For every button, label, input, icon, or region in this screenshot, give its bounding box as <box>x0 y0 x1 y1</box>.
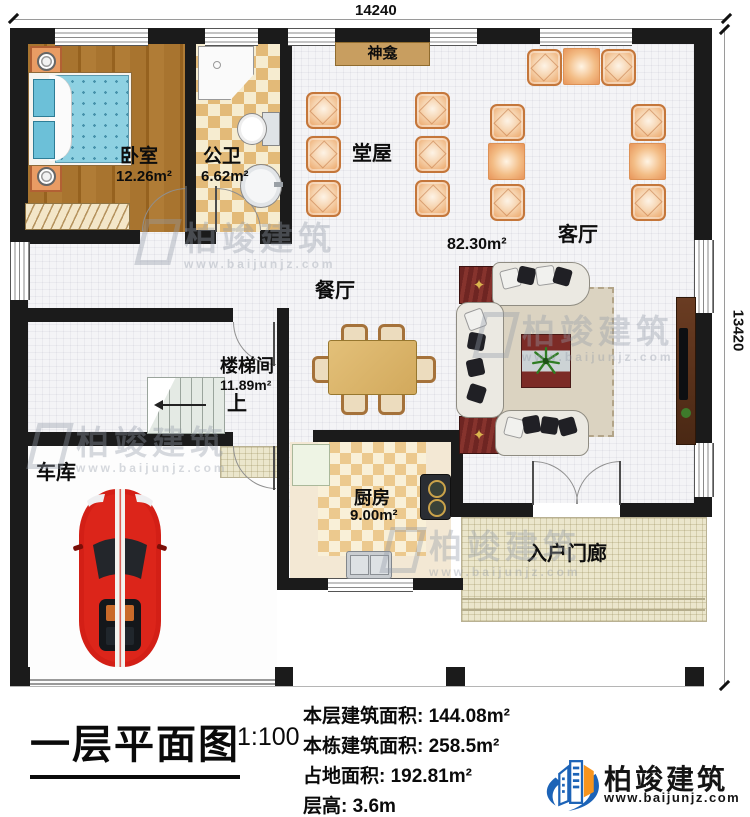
column <box>446 667 465 687</box>
star-decor-icon: ✦ <box>473 426 486 444</box>
sofa-pillow <box>466 383 487 404</box>
window <box>540 28 632 46</box>
hall-chair <box>490 104 525 141</box>
living-area: 82.30m² <box>447 236 507 254</box>
stat-value: 3.6m <box>353 796 396 817</box>
bedroom-label: 卧室 <box>120 147 158 168</box>
kitchen-area: 9.00m² <box>350 508 398 525</box>
sofa-pillow <box>540 416 559 435</box>
wall-segment <box>694 497 712 517</box>
wall-segment <box>477 28 540 44</box>
hall-chair <box>415 180 450 217</box>
stat-value: 192.81m² <box>391 766 472 787</box>
wall-segment <box>10 308 233 322</box>
hall-tea-table <box>563 48 600 85</box>
stat-label: 本层建筑面积: <box>303 706 423 727</box>
dining-table <box>328 340 417 395</box>
hall-chair <box>306 180 341 217</box>
sofa-pillow <box>463 307 487 331</box>
burner-icon <box>428 499 446 517</box>
plan-scale: 1:100 <box>237 723 300 752</box>
door-leaf <box>185 186 187 232</box>
kitchen-sink <box>346 551 392 579</box>
bed <box>28 72 132 166</box>
hall-label: 堂屋 <box>352 143 392 165</box>
dimension-tick <box>721 13 732 24</box>
plan-title: 一层平面图 <box>30 712 240 779</box>
window <box>430 28 477 46</box>
end-table: ✦ <box>459 416 499 454</box>
column <box>275 667 293 687</box>
plant-icon <box>530 345 562 377</box>
wall-segment <box>186 230 216 244</box>
bathroom-area: 6.62m² <box>201 169 249 186</box>
bathroom-label: 公卫 <box>203 147 241 168</box>
stairs-direction-line <box>162 404 206 406</box>
plot-boundary-line <box>10 686 704 687</box>
stat-value: 144.08m² <box>429 706 510 727</box>
column <box>12 667 30 687</box>
pillow <box>33 79 55 117</box>
wall-segment <box>413 578 463 590</box>
coffee-table <box>521 334 571 388</box>
fridge <box>292 444 330 486</box>
garage-door-line <box>30 683 275 685</box>
hall-chair <box>631 184 666 221</box>
wall-segment <box>277 308 289 590</box>
wall-segment <box>278 578 328 590</box>
porch-label: 入户门廊 <box>527 543 607 565</box>
tv-icon <box>679 328 688 400</box>
kitchen-label: 厨房 <box>354 489 390 509</box>
hall-chair <box>415 92 450 129</box>
window <box>205 28 258 46</box>
stat-label: 本栋建筑面积: <box>303 736 423 757</box>
faucet-icon <box>274 182 283 187</box>
garage-label: 车库 <box>36 462 76 484</box>
wall-segment <box>620 503 694 517</box>
wall-segment <box>260 230 292 244</box>
stairs-up-label: 上 <box>227 393 247 415</box>
floorplan-page: 神龛 ✦ ✦ <box>0 0 750 817</box>
door-leaf <box>273 446 275 490</box>
dimension-line-right <box>724 30 725 687</box>
wall-segment <box>694 313 712 443</box>
stove <box>420 474 451 520</box>
dimension-top-value: 14240 <box>355 2 397 19</box>
wardrobe <box>25 203 130 230</box>
lamp-icon <box>37 52 56 71</box>
sofa-top <box>492 262 590 306</box>
porch-step-line <box>461 598 705 600</box>
sofa-bottom <box>495 410 589 456</box>
brand-website: www.baijunjz.com <box>604 790 740 805</box>
dimension-right-value: 13420 <box>730 301 747 361</box>
toilet-bowl <box>237 113 267 145</box>
hall-chair <box>631 104 666 141</box>
pillow <box>33 121 55 159</box>
column <box>685 667 704 687</box>
sofa-left <box>456 302 504 418</box>
entry-door-leaf <box>532 461 534 505</box>
wall-segment <box>694 28 712 240</box>
burner-icon <box>428 480 446 498</box>
sofa-pillow <box>552 266 573 287</box>
shrine-label: 神龛 <box>367 46 397 63</box>
stairwell-area: 11.89m² <box>220 378 271 393</box>
window <box>10 242 30 300</box>
porch-step-line <box>461 609 705 611</box>
sofa-pillow <box>467 332 487 352</box>
stat-floor-height: 层高: 3.6m <box>303 791 396 817</box>
hall-tea-table <box>629 143 666 180</box>
sink-basin <box>350 555 369 575</box>
stat-footprint-area: 占地面积: 192.81m² <box>303 761 472 788</box>
sofa-pillow <box>516 265 536 285</box>
hall-chair <box>415 136 450 173</box>
dining-label: 餐厅 <box>315 280 355 302</box>
stat-label: 层高: <box>303 796 347 817</box>
stat-value: 258.5m² <box>429 736 500 757</box>
brand-logo-icon <box>543 750 601 814</box>
hall-chair <box>306 136 341 173</box>
window <box>55 28 148 46</box>
sofa-pillow <box>522 415 542 435</box>
bedroom-area: 12.26m² <box>116 169 172 186</box>
hall-chair <box>490 184 525 221</box>
stairwell-label: 楼梯间 <box>220 357 274 377</box>
wall-segment <box>148 28 205 44</box>
hall-chair <box>601 49 636 86</box>
window <box>694 443 714 497</box>
wall-segment <box>10 432 233 446</box>
wall-segment <box>258 28 288 44</box>
stat-label: 占地面积: <box>303 766 385 787</box>
plant-icon <box>681 408 691 418</box>
shower-drain-icon <box>213 61 221 69</box>
hall-tea-table <box>488 143 525 180</box>
hall-chair <box>306 92 341 129</box>
wall-segment <box>280 44 292 232</box>
garage-door-line <box>30 679 275 681</box>
shrine-cabinet: 神龛 <box>335 42 430 66</box>
star-decor-icon: ✦ <box>473 276 486 294</box>
wall-segment <box>313 430 463 442</box>
wall-segment <box>453 503 533 517</box>
sofa-pillow <box>465 357 485 377</box>
sports-car <box>73 487 167 670</box>
stat-floor-area: 本层建筑面积: 144.08m² <box>303 701 510 728</box>
window <box>328 578 413 592</box>
entry-door-gap <box>533 503 620 517</box>
window <box>694 240 714 313</box>
stat-building-area: 本栋建筑面积: 258.5m² <box>303 731 499 758</box>
tv-cabinet <box>676 297 696 445</box>
lamp-icon <box>37 167 56 186</box>
dimension-line-top <box>13 19 727 20</box>
dimension-tick <box>719 680 730 691</box>
window <box>288 28 335 46</box>
entry-door-leaf <box>619 461 621 505</box>
sofa-pillow <box>557 416 578 437</box>
wall-segment <box>10 300 28 687</box>
door-leaf <box>215 186 217 232</box>
sink-basin <box>370 555 389 575</box>
porch-floor <box>461 517 707 622</box>
stairs-arrow-icon <box>154 400 163 410</box>
hall-chair <box>527 49 562 86</box>
living-label: 客厅 <box>558 224 598 246</box>
stairs <box>147 377 225 434</box>
